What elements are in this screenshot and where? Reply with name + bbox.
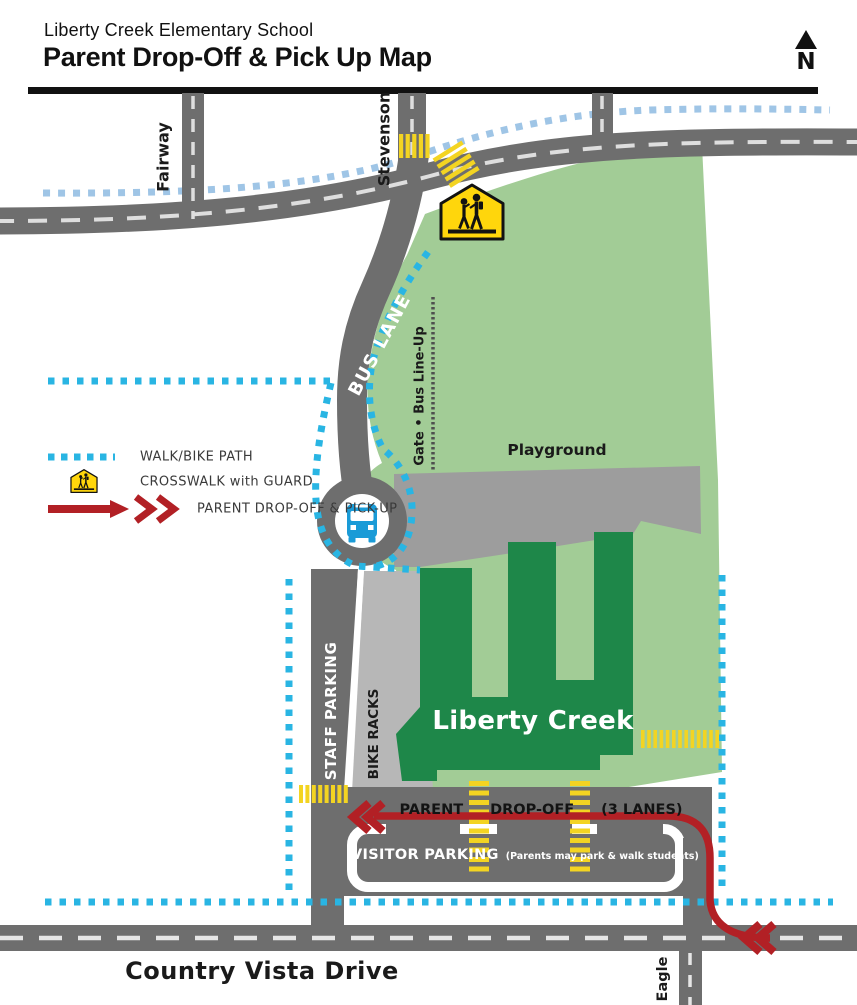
stevenson-road xyxy=(398,93,426,178)
north-arrow-icon xyxy=(795,30,817,49)
walk-bike-path-north xyxy=(43,109,830,193)
parking-divider-gap xyxy=(349,569,361,792)
legend-dropoff-arrow-icon xyxy=(48,497,174,521)
crosswalk-stevenson xyxy=(399,134,430,158)
eagle-road xyxy=(679,951,702,1005)
north-side-street xyxy=(592,93,613,138)
school-building xyxy=(396,532,633,781)
visitor-parking-title: VISITOR PARKING xyxy=(351,847,499,863)
street-label-eagle: Eagle xyxy=(655,957,671,1002)
country-vista-road xyxy=(0,925,857,951)
crosswalk-staff-entrance xyxy=(299,785,348,803)
staff-parking-label: STAFF PARKING xyxy=(322,642,340,781)
parent-dropoff-route xyxy=(353,803,774,952)
fairway-road xyxy=(182,93,204,223)
bus-roundabout xyxy=(317,476,407,566)
legend-crosswalk-sign-icon xyxy=(71,470,97,493)
street-label-fairway: Fairway xyxy=(154,122,173,192)
legend-item-walk-bike-path: WALK/BIKE PATH xyxy=(140,450,253,465)
playground-label: Playground xyxy=(507,441,606,459)
school-building-label: Liberty Creek xyxy=(432,706,633,736)
arterial-centerline xyxy=(0,142,857,221)
bike-racks-area xyxy=(351,571,433,790)
school-field xyxy=(355,145,722,790)
route-arrow-east xyxy=(744,924,774,952)
playground-area xyxy=(394,466,701,567)
parent-dropoff-word: PARENT xyxy=(399,802,463,818)
street-label-country-vista: Country Vista Drive xyxy=(125,957,399,985)
school-crossing-sign xyxy=(441,185,503,239)
crosswalk-arterial-diagonal xyxy=(433,141,480,188)
parent-dropoff-word: DROP-OFF xyxy=(490,802,574,818)
bike-racks-label: BIKE RACKS xyxy=(366,689,382,780)
parent-dropoff-label: PARENT DROP-OFF (3 LANES) xyxy=(399,802,682,818)
page-title: Parent Drop-Off & Pick Up Map xyxy=(43,42,432,73)
route-arrow-west xyxy=(353,803,383,831)
visitor-parking-note: (Parents may park & walk students) xyxy=(506,851,699,862)
dropoff-map-page: Liberty Creek Elementary School Parent D… xyxy=(0,0,857,1005)
school-name-heading: Liberty Creek Elementary School xyxy=(44,20,313,41)
crosswalk-field-east xyxy=(641,730,719,748)
street-label-stevenson: Stevenson xyxy=(375,92,394,187)
parent-dropoff-word: (3 LANES) xyxy=(601,802,682,818)
gate-bus-lineup-label: Gate • Bus Line-Up xyxy=(413,326,428,465)
legend-item-crosswalk-guard: CROSSWALK with GUARD xyxy=(140,475,313,490)
staff-parking-road xyxy=(311,569,358,925)
north-arrow: N xyxy=(795,30,817,74)
north-arterial-road xyxy=(0,142,857,221)
bus-lane-road xyxy=(352,155,414,502)
bus-lane-label: BUS LANE xyxy=(344,290,415,399)
north-label: N xyxy=(796,51,815,74)
legend-item-parent-dropoff: PARENT DROP-OFF & PICK-UP xyxy=(197,502,397,517)
visitor-parking-label: VISITOR PARKING (Parents may park & walk… xyxy=(351,847,699,863)
title-rule xyxy=(28,87,818,94)
